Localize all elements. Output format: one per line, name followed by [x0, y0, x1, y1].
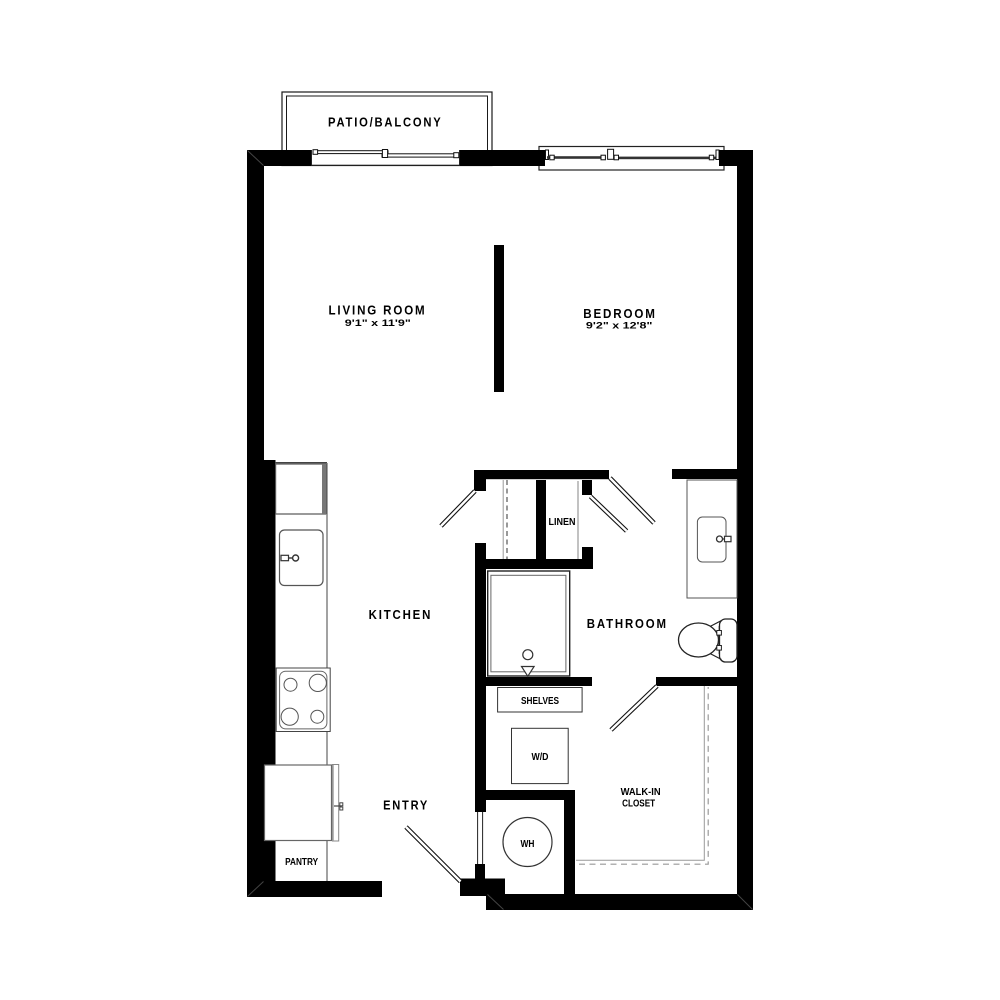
svg-text:BATHROOM: BATHROOM	[587, 617, 668, 631]
svg-text:BEDROOM: BEDROOM	[583, 307, 657, 321]
svg-text:SHELVES: SHELVES	[521, 695, 559, 707]
svg-text:WALK-IN: WALK-IN	[621, 786, 661, 798]
svg-text:LINEN: LINEN	[549, 516, 576, 528]
svg-text:PANTRY: PANTRY	[285, 856, 318, 868]
svg-text:9'2" x 12'8": 9'2" x 12'8"	[586, 321, 653, 331]
svg-text:WH: WH	[521, 838, 535, 850]
svg-text:PATIO/BALCONY: PATIO/BALCONY	[328, 115, 443, 129]
svg-text:CLOSET: CLOSET	[622, 798, 655, 810]
svg-text:ENTRY: ENTRY	[383, 798, 429, 812]
svg-text:KITCHEN: KITCHEN	[369, 608, 433, 622]
svg-text:LIVING ROOM: LIVING ROOM	[329, 304, 427, 318]
svg-text:W/D: W/D	[532, 751, 549, 763]
svg-text:9'1" x 11'9": 9'1" x 11'9"	[345, 318, 411, 328]
